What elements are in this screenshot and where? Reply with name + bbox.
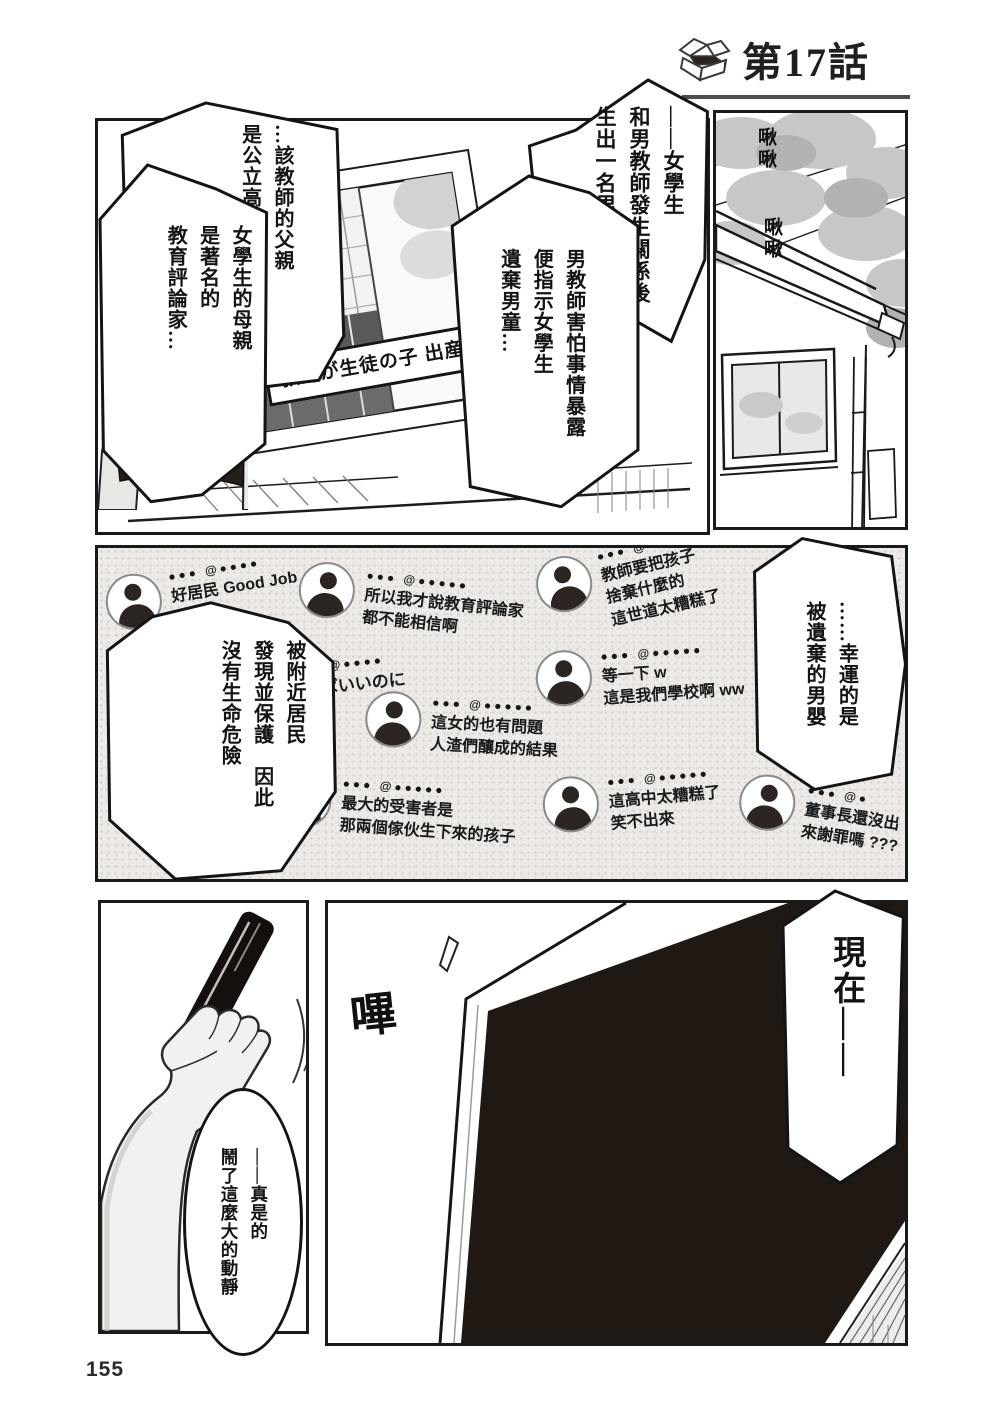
speech-bubble-now: 現在—— [783,891,907,1183]
speech-bubble-commotion: ——真是的 鬧了這麼大的動靜 [183,1088,303,1356]
bubble-line: 女學生的母親 [224,225,256,351]
speech-bubble-teacher: 男教師害怕事情暴露 便指示女學生 遺棄男童… [440,176,642,510]
sns-comment: ●●● @●●●● 教師要把孩子 捨棄什麼的 這世道太糟糕了 [531,545,724,647]
bubble-line: …該教師的父親 [266,124,298,313]
manga-page: 第17話 [0,0,1000,1421]
sns-comment: ●●● @●●●●● 這高中太糟糕了 笑不出來 [541,763,724,842]
bubble-line: ……幸運的是 [830,601,862,727]
bubble-line: 教育評論家… [159,225,191,351]
bubble-line: ——女學生 [656,106,690,304]
user-avatar-icon [541,774,602,835]
speech-bubble-mother: 女學生的母親 是著名的 教育評論家… [100,165,270,505]
sfx-bird-chirp-bottom: 啾啾 [762,217,781,261]
panel-house-exterior: 啾啾 啾啾 [713,110,908,530]
bubble-line: 沒有生命危險 [213,640,245,808]
bubble-line: 發現並保護 因此 [245,640,277,808]
page-number: 155 [86,1358,124,1382]
sns-comment: ●●● @●●●●● 這女的也有問題 人渣們釀成的結果 [363,690,560,764]
open-box-icon [674,32,732,84]
spark-icon [440,937,458,971]
bubble-line: 是著名的 [191,225,223,351]
user-avatar-icon [531,551,598,618]
bubble-line: 便指示女學生 [525,249,557,438]
sns-comment: ●●● @●●●●● 等一下 w 這是我們學校啊 ww [534,638,745,716]
house-illustration [716,113,908,530]
speech-bubble-rescued: 被附近居民 發現並保護 因此 沒有生命危險 [105,600,340,882]
bubble-line: ——真是的 [243,1148,273,1296]
chapter-title: 第17話 [742,30,870,88]
bubble-line: 鬧了這麼大的動靜 [213,1148,243,1296]
bubble-line: 被遺棄的男嬰 [798,601,830,727]
bubble-line: 現在—— [818,935,871,1079]
bubble-line: 男教師害怕事情暴露 [557,249,589,438]
bubble-line: 遺棄男童… [492,249,524,438]
sfx-beep: 嗶 [347,977,400,1047]
chapter-underline [682,95,910,99]
bubble-line: 被附近居民 [278,640,310,808]
user-avatar-icon [364,690,423,749]
sfx-bird-chirp-top: 啾啾 [756,127,775,171]
speech-bubble-lucky: ……幸運的是 被遺棄的男嬰 [753,536,907,792]
